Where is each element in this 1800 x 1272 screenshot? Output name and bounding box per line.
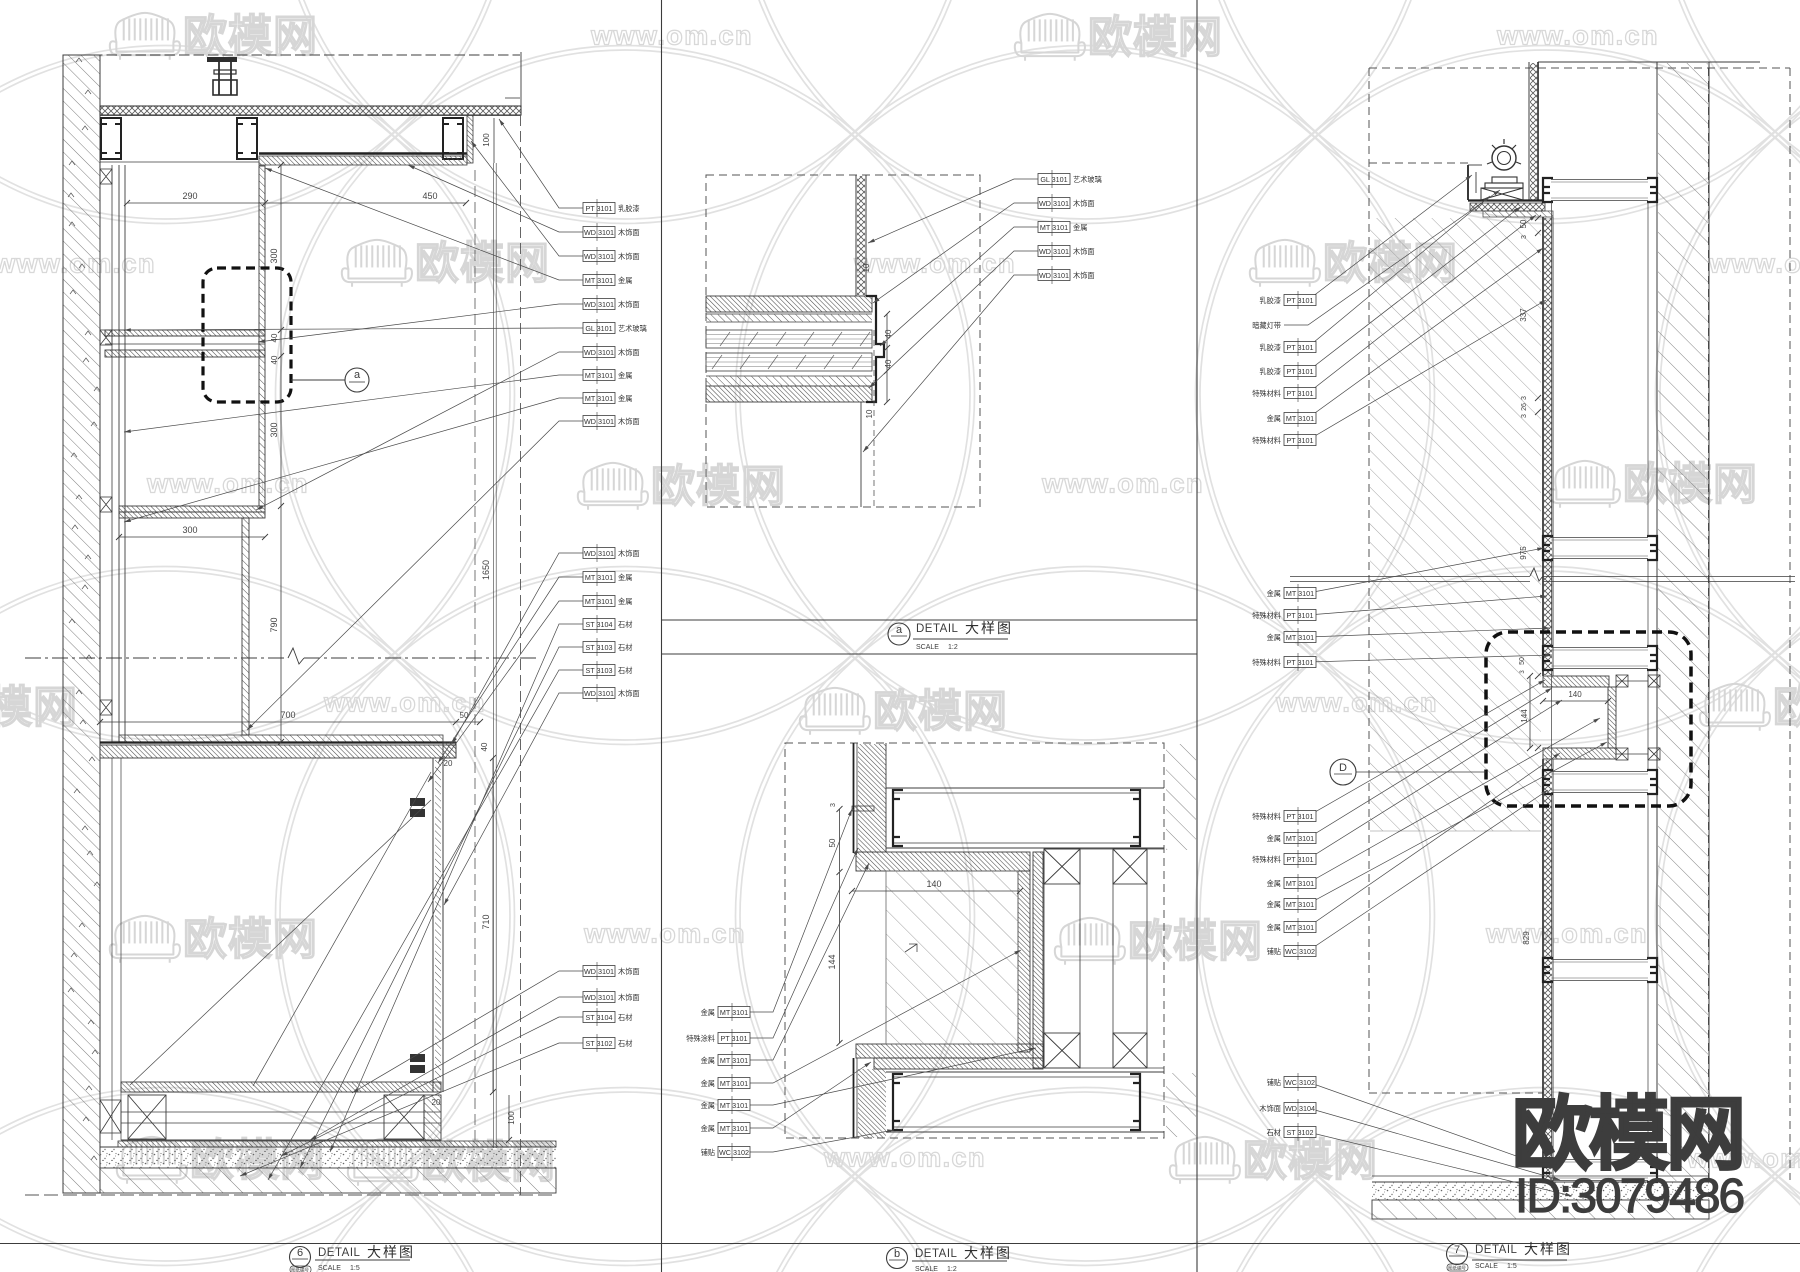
svg-text:乳胶漆: 乳胶漆 — [1259, 343, 1281, 352]
svg-text:3: 3 — [1521, 414, 1528, 418]
svg-text:ID:3079486: ID:3079486 — [1515, 1170, 1744, 1223]
svg-text:6: 6 — [297, 1247, 303, 1259]
svg-text:PT 3101: PT 3101 — [1286, 367, 1313, 376]
svg-text:乳胶漆: 乳胶漆 — [618, 204, 640, 213]
svg-text:DETAIL: DETAIL — [1475, 1244, 1518, 1256]
svg-text:300: 300 — [269, 248, 279, 263]
svg-text:欧模网: 欧模网 — [415, 239, 550, 288]
svg-text:www.om.cn: www.om.cn — [146, 469, 309, 499]
svg-text:大样图: 大样图 — [964, 1245, 1012, 1261]
svg-text:MT 3101: MT 3101 — [585, 597, 613, 606]
svg-text:木饰面: 木饰面 — [618, 549, 640, 558]
svg-text:SCALE: SCALE — [916, 644, 939, 651]
svg-text:特殊材料: 特殊材料 — [1252, 436, 1281, 445]
svg-text:铺贴: 铺贴 — [701, 1148, 715, 1157]
svg-text:特殊材料: 特殊材料 — [1252, 658, 1281, 667]
svg-text:乳胶漆: 乳胶漆 — [1259, 367, 1281, 376]
svg-text:WC 3102: WC 3102 — [719, 1148, 749, 1157]
svg-text:PT 3101: PT 3101 — [1286, 296, 1313, 305]
svg-text:金属: 金属 — [1267, 633, 1281, 642]
svg-text:3: 3 — [830, 803, 837, 807]
svg-text:WC 3102: WC 3102 — [1285, 947, 1315, 956]
svg-text:MT 3101: MT 3101 — [1286, 633, 1314, 642]
svg-text:450: 450 — [422, 191, 437, 201]
svg-text:木饰面: 木饰面 — [618, 993, 640, 1002]
svg-text:www.om.cn: www.om.cn — [1708, 249, 1800, 279]
svg-text:金属: 金属 — [618, 573, 632, 582]
svg-text:艺术玻璃: 艺术玻璃 — [618, 324, 647, 333]
svg-text:300: 300 — [269, 422, 279, 437]
svg-text:ST 3103: ST 3103 — [585, 666, 612, 675]
svg-text:26: 26 — [1521, 403, 1528, 411]
svg-text:大样图: 大样图 — [1524, 1241, 1572, 1257]
svg-text:10: 10 — [862, 263, 871, 272]
svg-text:木饰面: 木饰面 — [618, 252, 640, 261]
svg-text:金属: 金属 — [1267, 414, 1281, 423]
svg-text:40: 40 — [270, 333, 279, 342]
svg-text:暗藏灯带: 暗藏灯带 — [1252, 321, 1281, 330]
svg-text:石材: 石材 — [618, 1013, 632, 1022]
svg-text:SCALE: SCALE — [915, 1266, 938, 1272]
svg-text:金属: 金属 — [1267, 923, 1281, 932]
svg-text:3: 3 — [1521, 396, 1528, 400]
svg-text:40: 40 — [480, 742, 489, 751]
svg-text:1:2: 1:2 — [948, 644, 958, 651]
svg-text:MT 3101: MT 3101 — [1286, 923, 1314, 932]
svg-text:大样图: 大样图 — [367, 1244, 415, 1260]
svg-text:MT 3101: MT 3101 — [585, 276, 613, 285]
svg-text:ST 3102: ST 3102 — [585, 1039, 612, 1048]
svg-text:ST 3104: ST 3104 — [585, 620, 612, 629]
svg-text:ST 3103: ST 3103 — [585, 643, 612, 652]
svg-text:木饰面: 木饰面 — [618, 967, 640, 976]
svg-text:特殊涂料: 特殊涂料 — [686, 1034, 715, 1043]
svg-text:10: 10 — [865, 409, 874, 418]
svg-text:欧模网: 欧模网 — [651, 462, 786, 511]
svg-text:3: 3 — [1521, 235, 1528, 239]
svg-text:MT 3101: MT 3101 — [1286, 589, 1314, 598]
svg-text:大样图: 大样图 — [965, 620, 1013, 636]
svg-text:石材: 石材 — [618, 666, 632, 675]
svg-text:www.om.cn: www.om.cn — [1041, 469, 1204, 499]
svg-text:1:5: 1:5 — [350, 1265, 360, 1272]
svg-text:SCALE: SCALE — [318, 1265, 341, 1272]
svg-text:PT 3101: PT 3101 — [585, 204, 612, 213]
svg-text:WD 3101: WD 3101 — [584, 689, 614, 698]
svg-text:欧模网: 欧模网 — [1773, 683, 1800, 732]
svg-text:PT 3101: PT 3101 — [1286, 855, 1313, 864]
svg-text:40: 40 — [884, 329, 893, 338]
svg-text:木饰面: 木饰面 — [1073, 247, 1095, 256]
svg-text:欧模网: 欧模网 — [1128, 917, 1263, 966]
svg-text:木饰面: 木饰面 — [618, 348, 640, 357]
svg-text:100: 100 — [507, 1111, 516, 1125]
svg-text:MT 3101: MT 3101 — [585, 371, 613, 380]
svg-text:木饰面: 木饰面 — [618, 689, 640, 698]
svg-text:欧模网: 欧模网 — [183, 12, 318, 61]
svg-text:石材: 石材 — [1267, 1128, 1281, 1137]
svg-text:www.om.cn: www.om.cn — [583, 919, 746, 949]
svg-text:金属: 金属 — [701, 1124, 715, 1133]
svg-text:PT 3101: PT 3101 — [1286, 611, 1313, 620]
svg-text:木饰面: 木饰面 — [1073, 271, 1095, 280]
svg-text:欧模网: 欧模网 — [1243, 1136, 1378, 1185]
svg-text:WD 3101: WD 3101 — [584, 252, 614, 261]
svg-text:a: a — [896, 624, 903, 636]
svg-text:MT 3101: MT 3101 — [720, 1124, 748, 1133]
svg-text:1:2: 1:2 — [947, 1266, 957, 1272]
svg-text:MT 3101: MT 3101 — [1286, 900, 1314, 909]
svg-text:ST 3102: ST 3102 — [1286, 1128, 1313, 1137]
svg-text:1:5: 1:5 — [1507, 1263, 1517, 1270]
svg-text:艺术玻璃: 艺术玻璃 — [1073, 175, 1102, 184]
svg-text:SCALE: SCALE — [1475, 1263, 1498, 1270]
svg-text:石材: 石材 — [618, 620, 632, 629]
svg-text:829: 829 — [1522, 931, 1531, 945]
svg-text:PT 3101: PT 3101 — [720, 1034, 747, 1043]
svg-text:图纸编号: 图纸编号 — [1448, 1265, 1466, 1272]
svg-text:欧模网: 欧模网 — [1088, 13, 1223, 62]
svg-text:WD 3101: WD 3101 — [584, 417, 614, 426]
svg-text:WD 3101: WD 3101 — [1039, 247, 1069, 256]
svg-text:290: 290 — [182, 191, 197, 201]
svg-text:特殊材料: 特殊材料 — [1252, 812, 1281, 821]
svg-text:MT 3101: MT 3101 — [720, 1056, 748, 1065]
svg-text:DETAIL: DETAIL — [916, 623, 959, 635]
svg-text:140: 140 — [926, 879, 941, 889]
svg-text:WD 3101: WD 3101 — [584, 300, 614, 309]
svg-text:欧模网: 欧模网 — [183, 915, 318, 964]
svg-text:金属: 金属 — [618, 276, 632, 285]
svg-text:www.om.cn: www.om.cn — [590, 21, 753, 51]
svg-text:金属: 金属 — [618, 394, 632, 403]
svg-text:MT 3101: MT 3101 — [585, 573, 613, 582]
svg-text:50: 50 — [1519, 657, 1526, 665]
svg-text:WD 3101: WD 3101 — [584, 228, 614, 237]
svg-text:铺贴: 铺贴 — [1267, 1078, 1281, 1087]
svg-text:MT 3101: MT 3101 — [720, 1008, 748, 1017]
svg-text:GL 3101: GL 3101 — [585, 324, 612, 333]
svg-text:欧模网: 欧模网 — [1512, 1090, 1743, 1179]
svg-text:www.om.cn: www.om.cn — [1485, 919, 1648, 949]
svg-text:MT 3101: MT 3101 — [1286, 879, 1314, 888]
svg-text:790: 790 — [269, 617, 279, 632]
svg-text:WD 3101: WD 3101 — [584, 967, 614, 976]
svg-text:图纸编号: 图纸编号 — [291, 1267, 309, 1272]
svg-text:b: b — [894, 1248, 900, 1260]
svg-text:乳胶漆: 乳胶漆 — [1259, 296, 1281, 305]
svg-text:D: D — [1339, 762, 1347, 774]
svg-text:PT 3101: PT 3101 — [1286, 812, 1313, 821]
svg-text:144: 144 — [1520, 709, 1529, 723]
svg-text:木饰面: 木饰面 — [618, 300, 640, 309]
svg-text:特殊材料: 特殊材料 — [1252, 611, 1281, 620]
svg-text:PT 3101: PT 3101 — [1286, 436, 1313, 445]
svg-text:金属: 金属 — [701, 1079, 715, 1088]
svg-text:PT 3101: PT 3101 — [1286, 389, 1313, 398]
svg-text:金属: 金属 — [1073, 223, 1087, 232]
svg-text:WD 3101: WD 3101 — [584, 348, 614, 357]
svg-text:WD 3101: WD 3101 — [1039, 271, 1069, 280]
svg-text:特殊材料: 特殊材料 — [1252, 855, 1281, 864]
svg-text:20: 20 — [444, 759, 453, 768]
svg-text:欧模网: 欧模网 — [873, 687, 1008, 736]
svg-text:木饰面: 木饰面 — [1259, 1104, 1281, 1113]
svg-text:WD 3101: WD 3101 — [584, 993, 614, 1002]
svg-text:www.om.cn: www.om.cn — [1496, 21, 1659, 51]
svg-text:金属: 金属 — [1267, 900, 1281, 909]
svg-text:金属: 金属 — [1267, 589, 1281, 598]
svg-text:WD 3101: WD 3101 — [584, 549, 614, 558]
svg-text:MT 3101: MT 3101 — [1040, 223, 1068, 232]
svg-text:7: 7 — [1454, 1244, 1460, 1256]
svg-text:金属: 金属 — [1267, 834, 1281, 843]
svg-text:DETAIL: DETAIL — [915, 1248, 958, 1260]
svg-text:DETAIL: DETAIL — [318, 1247, 361, 1259]
svg-text:MT 3101: MT 3101 — [1286, 834, 1314, 843]
svg-text:金属: 金属 — [618, 371, 632, 380]
svg-text:WC 3102: WC 3102 — [1285, 1078, 1315, 1087]
svg-text:木饰面: 木饰面 — [618, 228, 640, 237]
svg-text:特殊材料: 特殊材料 — [1252, 389, 1281, 398]
svg-text:WD 3101: WD 3101 — [1039, 199, 1069, 208]
svg-text:MT 3101: MT 3101 — [1286, 414, 1314, 423]
svg-text:MT 3101: MT 3101 — [720, 1101, 748, 1110]
svg-text:GL 3101: GL 3101 — [1040, 175, 1067, 184]
svg-text:20: 20 — [432, 1098, 441, 1107]
svg-text:铺贴: 铺贴 — [1267, 947, 1281, 956]
svg-text:144: 144 — [827, 954, 837, 969]
svg-text:www.om.cn: www.om.cn — [853, 249, 1016, 279]
svg-text:1650: 1650 — [481, 560, 491, 580]
svg-text:PT 3101: PT 3101 — [1286, 658, 1313, 667]
svg-text:140: 140 — [1568, 690, 1582, 699]
svg-text:www.om.cn: www.om.cn — [823, 1143, 986, 1173]
svg-text:石材: 石材 — [618, 643, 632, 652]
svg-text:石材: 石材 — [618, 1039, 632, 1048]
svg-text:金属: 金属 — [701, 1008, 715, 1017]
svg-text:50: 50 — [828, 838, 837, 847]
svg-text:PT 3101: PT 3101 — [1286, 343, 1313, 352]
svg-text:木饰面: 木饰面 — [1073, 199, 1095, 208]
svg-text:710: 710 — [481, 914, 491, 929]
svg-text:WD 3104: WD 3104 — [1285, 1104, 1315, 1113]
svg-text:ST 3104: ST 3104 — [585, 1013, 612, 1022]
svg-text:MT 3101: MT 3101 — [585, 394, 613, 403]
svg-text:300: 300 — [182, 525, 197, 535]
svg-text:700: 700 — [280, 710, 295, 720]
svg-text:金属: 金属 — [701, 1101, 715, 1110]
svg-text:金属: 金属 — [701, 1056, 715, 1065]
svg-text:40: 40 — [270, 355, 279, 364]
svg-text:100: 100 — [482, 133, 491, 147]
svg-text:金属: 金属 — [1267, 879, 1281, 888]
svg-text:木饰面: 木饰面 — [618, 417, 640, 426]
svg-text:金属: 金属 — [618, 597, 632, 606]
svg-text:MT 3101: MT 3101 — [720, 1079, 748, 1088]
svg-text:a: a — [354, 369, 361, 381]
